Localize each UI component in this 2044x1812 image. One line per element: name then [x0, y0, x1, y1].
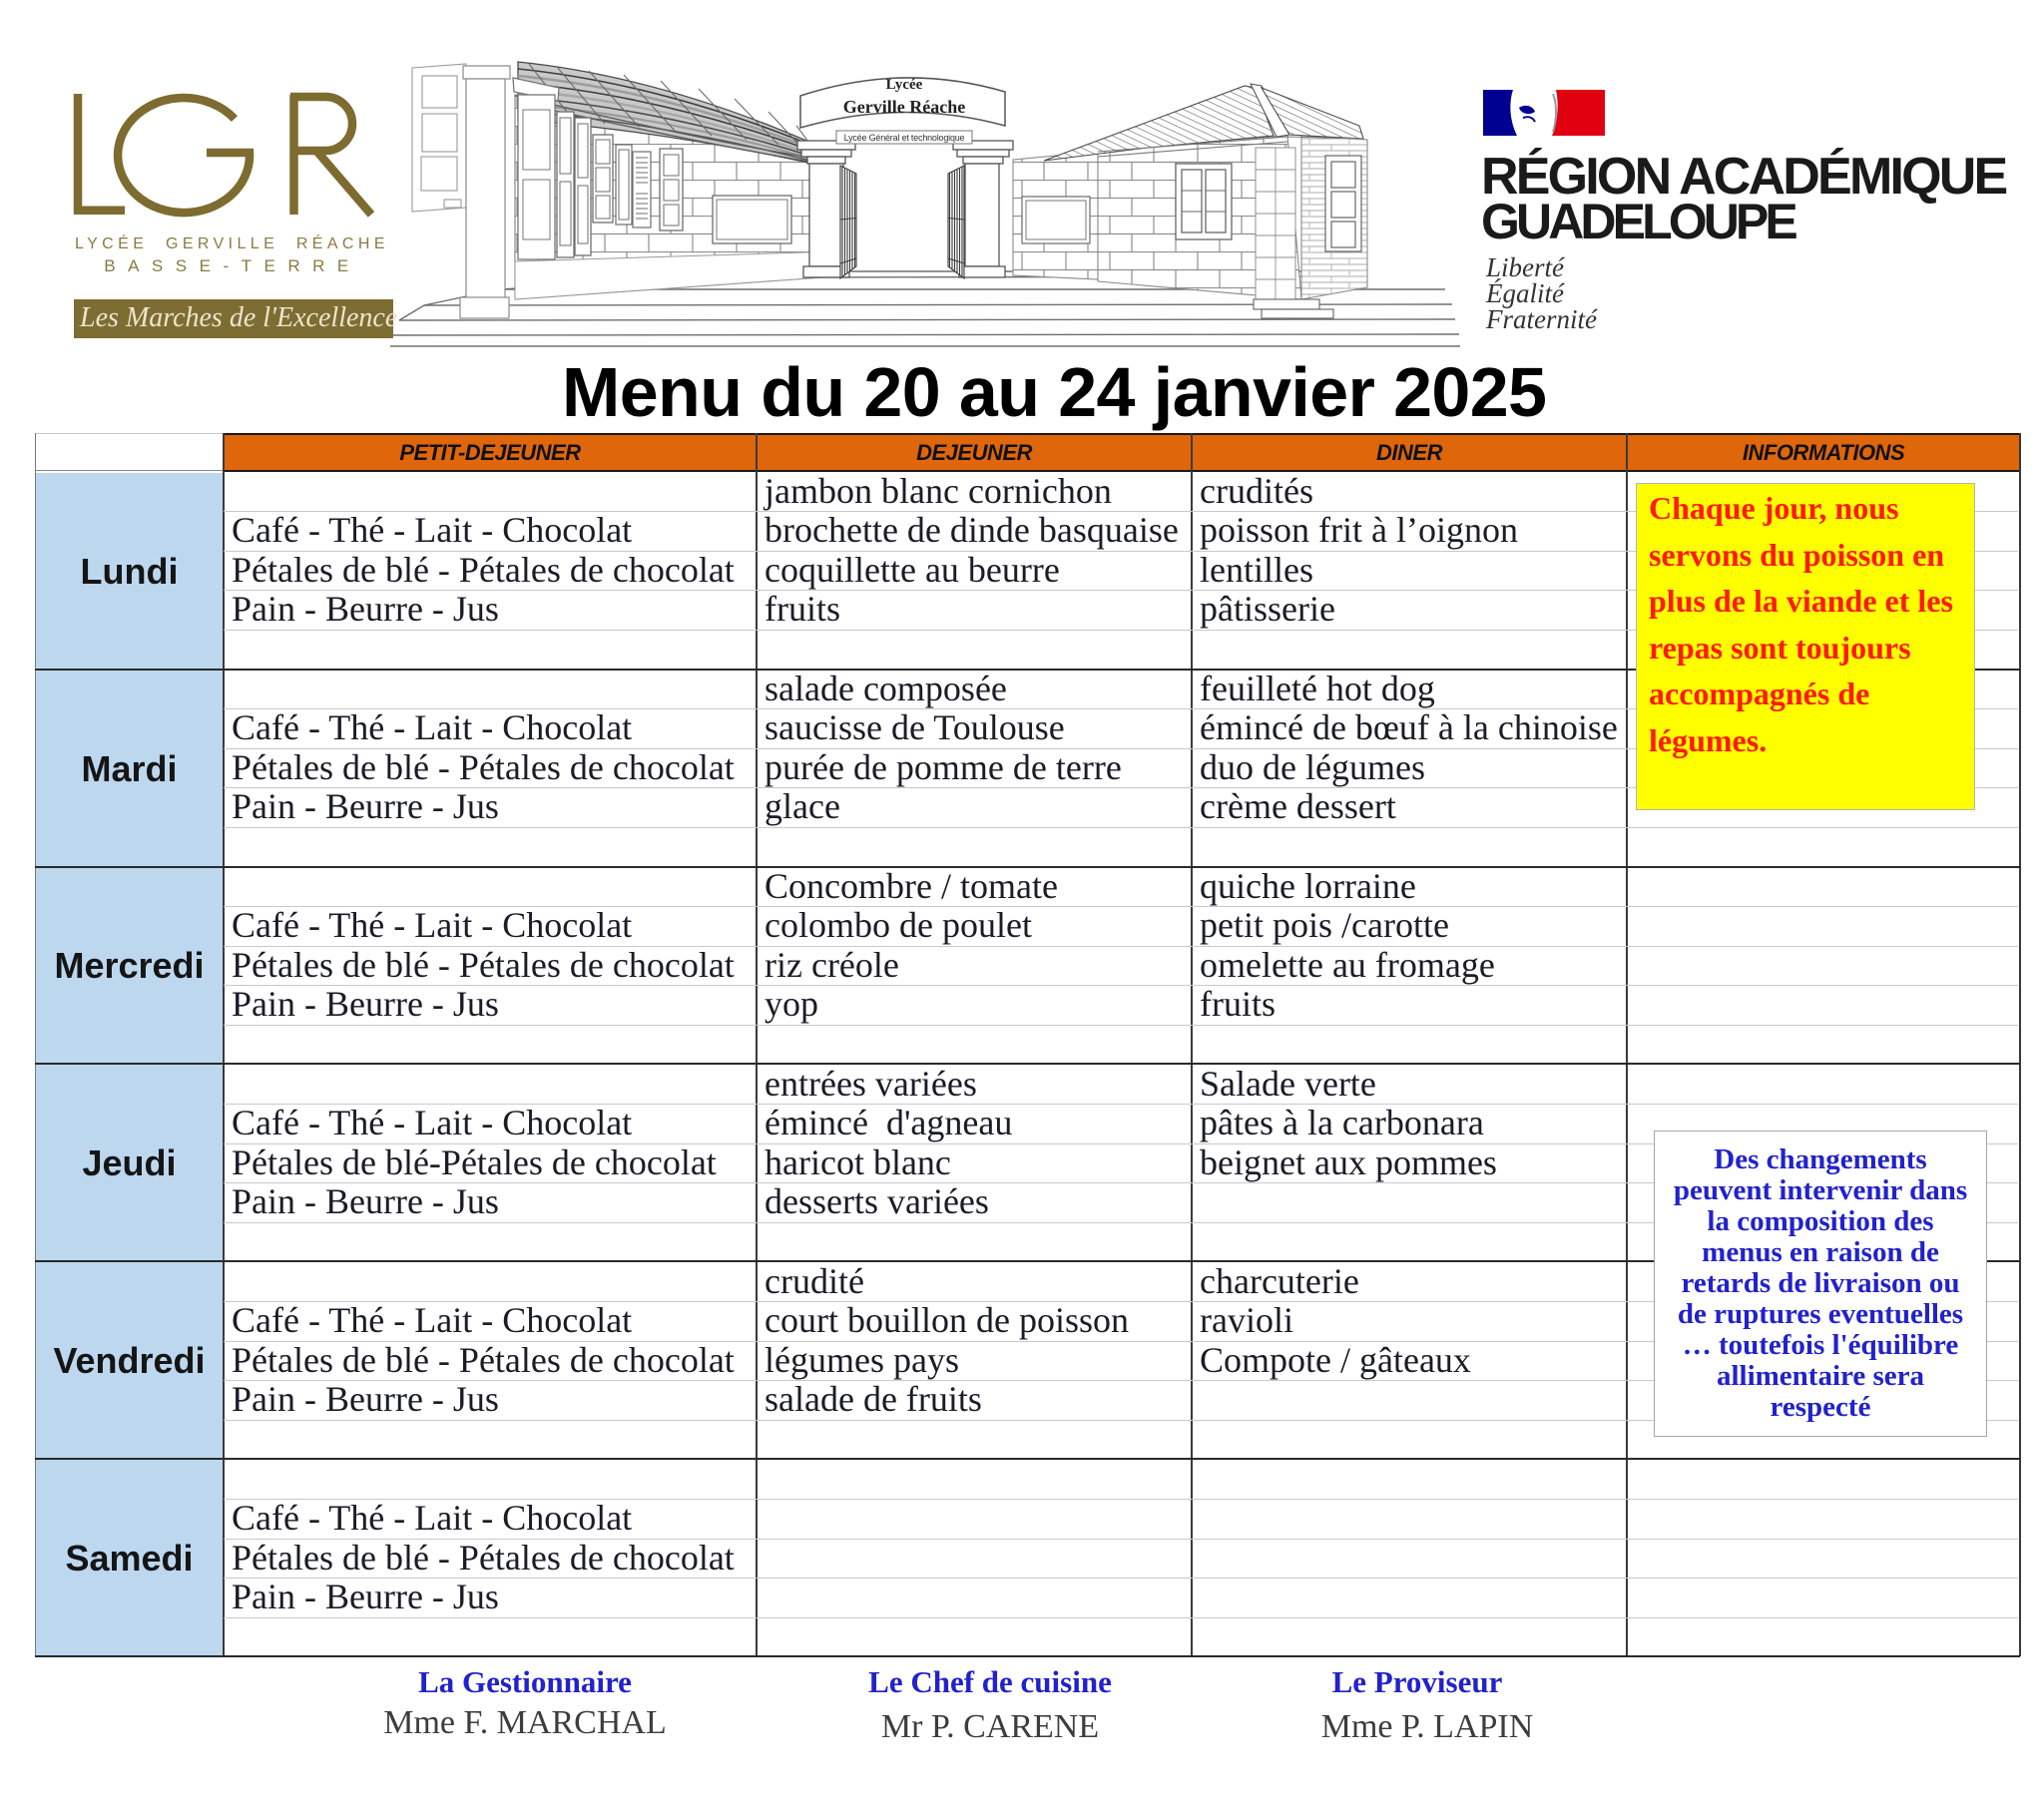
svg-text:Lycée Général et technologique: Lycée Général et technologique	[844, 133, 965, 143]
svg-text:Gerville Réache: Gerville Réache	[843, 97, 965, 117]
svg-text:Lycée: Lycée	[886, 77, 923, 93]
